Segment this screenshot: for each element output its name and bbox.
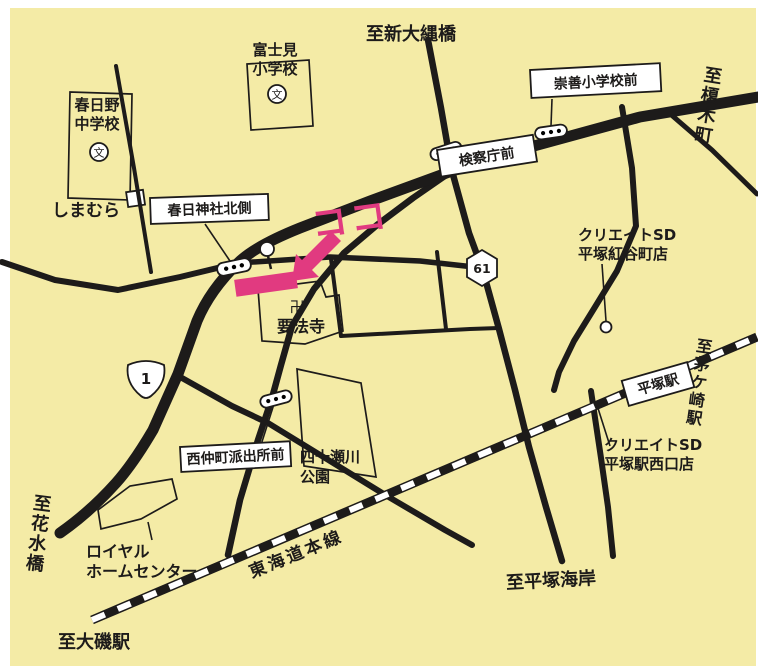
label-fujimi-school-2: 小学校 [252,60,298,78]
label-royal-home-center-2: ホームセンター [86,562,198,581]
route-61-shield: 61 [467,250,497,286]
temple-manji-icon: 卍 [289,298,304,316]
svg-text:文: 文 [94,146,105,160]
label-box-nishinakacho: 西仲町派出所前 [180,441,291,472]
label-fujimi-school-1: 富士見 [252,41,297,59]
route-1-number: 1 [141,370,151,388]
fujimi-school-symbol-icon: 文 [268,85,286,103]
kasugano-school-symbol-icon: 文 [90,143,108,161]
shimamura-building [126,190,145,207]
location-map: 1 61 文 文 ココ 至新大縄橋 至榎木町 至茅ケ崎駅 至花水橋 至大磯駅 至… [0,0,758,672]
leader-suzen [551,99,552,126]
label-to-oiso-station: 至大磯駅 [58,631,131,653]
label-kasugano-school-2: 中学校 [74,115,120,133]
label-create-west-2: 平塚駅西口店 [604,455,694,473]
svg-text:春日神社北側: 春日神社北側 [166,199,252,219]
label-create-beniya-1: クリエイトSD [578,226,676,244]
map-page: 1 61 文 文 ココ 至新大縄橋 至榎木町 至茅ケ崎駅 至花水橋 至大磯駅 至… [0,0,758,672]
label-royal-home-center-1: ロイヤル [86,542,150,561]
label-box-suzen-shogakko-mae: 崇善小学校前 [530,63,661,98]
svg-text:文: 文 [272,88,283,102]
label-create-beniya-2: 平塚紅谷町店 [578,245,668,263]
label-park-1: 四十瀬川 [300,448,360,466]
label-box-kasuga-jinja-kitagawa: 春日神社北側 [150,194,269,224]
label-kasugano-school-1: 春日野 [74,96,119,114]
label-park-2: 公園 [300,468,330,486]
route-61-number: 61 [473,261,490,276]
label-shimamura: しまむら [52,201,120,221]
create-beniya-location-circle [601,322,612,333]
label-create-west-1: クリエイトSD [604,436,702,454]
label-temple-name: 要法寺 [277,317,325,336]
label-to-shin-onawabashi: 至新大縄橋 [366,23,457,45]
